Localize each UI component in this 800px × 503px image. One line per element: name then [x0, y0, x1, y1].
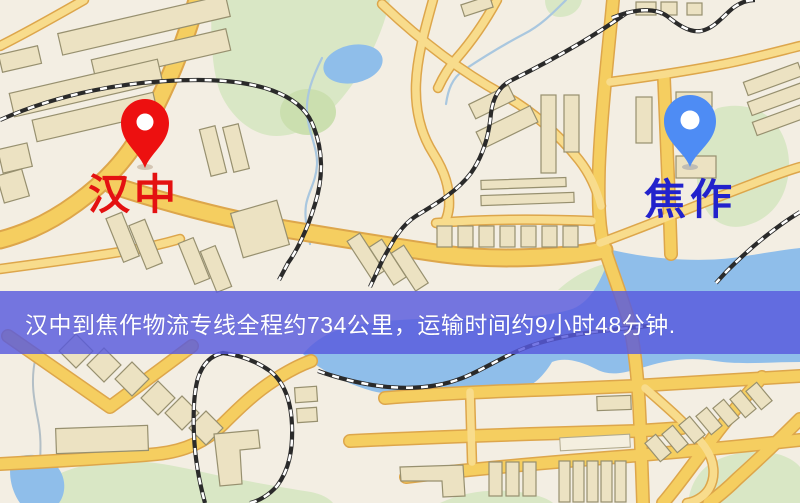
route-info-text: 汉中到焦作物流专线全程约734公里，运输时间约9小时48分钟.: [25, 306, 676, 340]
route-info-banner: 汉中到焦作物流专线全程约734公里，运输时间约9小时48分钟.: [0, 291, 800, 354]
map-view[interactable]: 汉中 焦作 汉中到焦作物流专线全程约734公里，运输时间约9小时48分钟.: [0, 0, 800, 503]
destination-city-label: 焦作: [644, 179, 736, 221]
origin-city-label: 汉中: [88, 174, 180, 216]
map-canvas[interactable]: [0, 0, 800, 503]
